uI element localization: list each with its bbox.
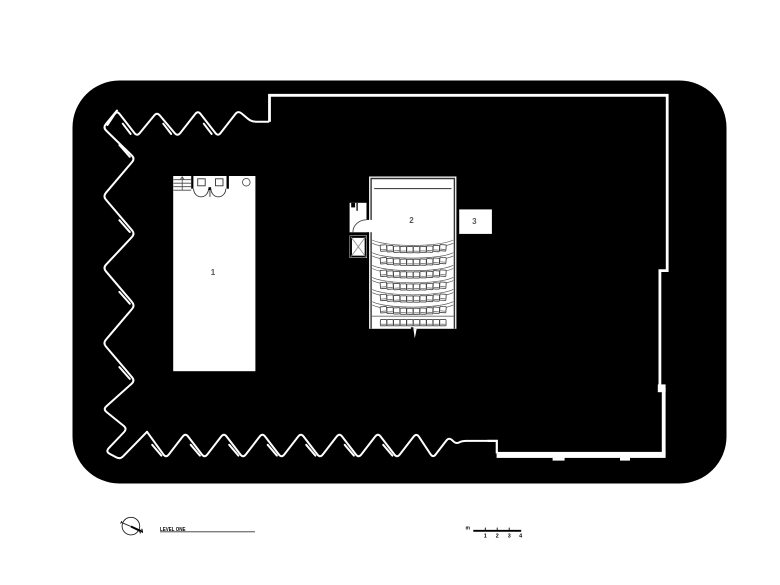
svg-text:1: 1: [484, 533, 487, 539]
svg-text:4: 4: [519, 533, 522, 539]
svg-text:m: m: [466, 526, 471, 532]
svg-text:1: 1: [211, 268, 216, 277]
svg-text:2: 2: [496, 533, 499, 539]
svg-text:3: 3: [508, 533, 511, 539]
svg-text:2: 2: [409, 216, 414, 225]
svg-text:3: 3: [472, 217, 477, 226]
